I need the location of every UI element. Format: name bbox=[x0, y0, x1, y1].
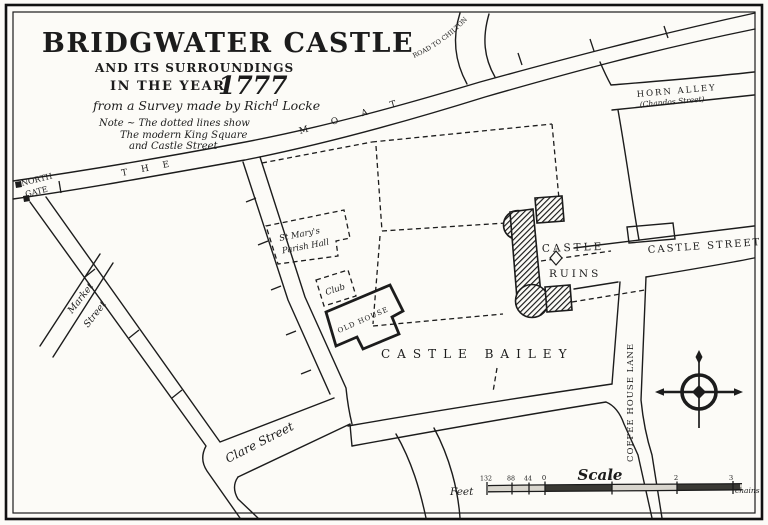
king-square-right bbox=[552, 124, 559, 199]
castle-bailey-label: CASTLE BAILEY bbox=[381, 347, 574, 361]
cross-street-tick-1 bbox=[246, 198, 256, 202]
club-label: Club bbox=[324, 282, 346, 298]
king-square-left bbox=[376, 146, 382, 231]
bailey-road-north-line bbox=[348, 384, 612, 426]
road-to-chilton-label: ROAD TO CHILTON bbox=[412, 15, 470, 60]
nw-road-tick-3 bbox=[172, 390, 182, 398]
modern-stub bbox=[493, 368, 497, 392]
scale-label-2chain: 2 bbox=[674, 474, 678, 482]
buildings bbox=[266, 210, 675, 349]
credit-post: Locke bbox=[278, 98, 320, 113]
coffee-house-lane-label: COFFEE HOUSE LANE bbox=[626, 343, 636, 462]
scale-bar: Scale Feet 132 88 44 0 1 2 3 chains bbox=[449, 466, 760, 498]
coffee-house-lane-west-line bbox=[612, 282, 620, 384]
road-to-chilton-textpath: ROAD TO CHILTON bbox=[412, 15, 470, 60]
moat-tick-3 bbox=[590, 39, 594, 51]
chandos-block-west-edge bbox=[618, 110, 639, 240]
cross-street-tick-4 bbox=[286, 331, 296, 335]
nw-road-tick-2 bbox=[129, 330, 139, 338]
map-year: 1777 bbox=[218, 71, 288, 100]
king-square-bottom bbox=[382, 223, 506, 231]
moat-tick-4 bbox=[664, 26, 668, 38]
compass-west-arrow bbox=[655, 388, 664, 396]
map-page: Scale Feet 132 88 44 0 1 2 3 chains BRID… bbox=[0, 0, 768, 525]
scale-label-88: 88 bbox=[507, 476, 515, 483]
market-street-line-1 bbox=[40, 254, 100, 346]
compass-rose bbox=[655, 350, 743, 428]
ruins-north-block bbox=[535, 196, 564, 223]
scale-unit-feet: Feet bbox=[449, 486, 474, 498]
horn-alley-north-line bbox=[600, 62, 754, 85]
scale-label-3chain: 3 bbox=[729, 474, 733, 482]
king-square-top bbox=[372, 124, 552, 142]
scale-title: Scale bbox=[578, 466, 623, 484]
south-branch-line-2 bbox=[434, 428, 460, 518]
market-street-label-2: Street bbox=[82, 299, 109, 330]
cross-street-tick-2 bbox=[258, 241, 268, 245]
clare-street-south-branch bbox=[235, 477, 259, 518]
castle-ruins bbox=[504, 196, 573, 318]
bridgwater-castle-map: Scale Feet 132 88 44 0 1 2 3 chains BRID… bbox=[0, 0, 768, 525]
credit-pre: from a Survey made by Rich bbox=[92, 98, 273, 113]
modern-castle-street-lower bbox=[572, 290, 645, 302]
ruins-south-tower bbox=[516, 285, 549, 318]
cross-street-west-line bbox=[243, 162, 330, 394]
scale-unit-chains: chains bbox=[735, 486, 760, 495]
castle-ruins-label-1: CASTLE bbox=[542, 241, 605, 255]
map-note-line2: The modern King Square bbox=[120, 130, 248, 141]
compass-center-diamond bbox=[692, 385, 706, 399]
castle-street-south-line-west bbox=[574, 282, 618, 289]
scale-label-132: 132 bbox=[480, 476, 492, 483]
cross-street-tick-5 bbox=[301, 370, 311, 374]
northwest-road-west-line bbox=[30, 202, 240, 518]
map-credit: from a Survey made by Richd Locke bbox=[92, 98, 320, 113]
map-note-line3: and Castle Street bbox=[129, 141, 219, 152]
north-gate-label-1: NORTH bbox=[20, 172, 53, 188]
scale-label-0: 0 bbox=[542, 474, 546, 482]
ruins-south-block bbox=[545, 285, 572, 312]
map-note-line1: Note ~ The dotted lines show bbox=[98, 118, 250, 129]
north-gate-label-2: GATE bbox=[24, 185, 49, 199]
south-branch-line-1 bbox=[396, 434, 426, 518]
bailey-road-south-line bbox=[352, 402, 652, 518]
map-title: BRIDGWATER CASTLE bbox=[42, 28, 414, 59]
castle-ruins-label-2: RUINS bbox=[549, 268, 601, 280]
old-house-label: OLD HOUSE bbox=[336, 305, 389, 335]
scale-label-1chain: 1 bbox=[609, 474, 613, 482]
compass-north-diamond bbox=[696, 350, 703, 364]
road-to-chilton-line-2 bbox=[485, 14, 495, 77]
map-year-line: IN THE YEAR bbox=[110, 79, 225, 94]
scale-label-44: 44 bbox=[524, 476, 532, 483]
cross-street-tick-3 bbox=[271, 286, 281, 290]
compass-east-arrow bbox=[734, 388, 743, 396]
castle-street-south-line-east bbox=[646, 258, 754, 277]
moat-tick-2 bbox=[518, 53, 522, 65]
